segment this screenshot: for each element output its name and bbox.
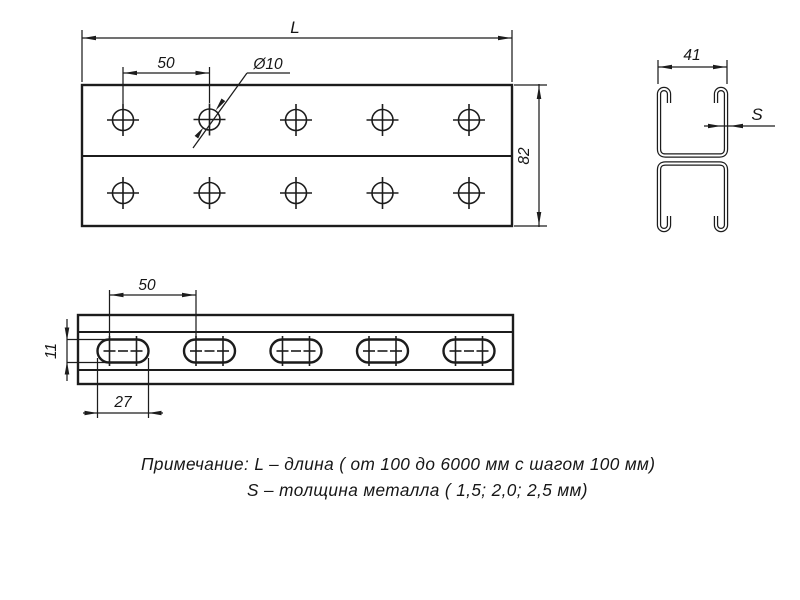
hole-marker [280, 177, 312, 209]
dim-hole-diameter: Ø10 [193, 56, 290, 148]
dim-thickness-label: S [751, 105, 763, 124]
lower-channel-section [659, 164, 726, 231]
hole-row-bottom [107, 177, 485, 209]
note-block: Примечание: L – длина ( от 100 до 6000 м… [141, 454, 655, 500]
upper-channel-section [659, 89, 726, 156]
dim-width-label: 41 [683, 47, 700, 64]
front-view: L 50 Ø10 82 [82, 18, 547, 227]
technical-drawing-sheet: L 50 Ø10 82 [0, 0, 800, 600]
slot-row [98, 336, 495, 366]
drawing-canvas: L 50 Ø10 82 [0, 0, 800, 600]
dim-height: 82 [514, 84, 547, 227]
dim-slot-spacing: 50 [110, 277, 197, 340]
dim-height-label: 82 [516, 147, 533, 165]
note-line-2: S – толщина металла ( 1,5; 2,0; 2,5 мм) [247, 480, 588, 500]
hole-row-top [107, 104, 485, 137]
dim-hole-spacing: 50 [123, 55, 210, 104]
dim-slot-length-label: 27 [113, 394, 133, 411]
slot-marker [444, 336, 495, 366]
dim-slot-spacing-label: 50 [138, 277, 156, 294]
hole-marker [367, 104, 399, 136]
hole-marker [194, 104, 226, 136]
side-view: 50 11 27 [43, 277, 513, 418]
dim-width: 41 [658, 47, 727, 84]
dim-hole-diameter-label: Ø10 [252, 56, 283, 73]
profile-view: 41 S [658, 47, 775, 230]
hole-marker [194, 177, 226, 209]
note-line-1: Примечание: L – длина ( от 100 до 6000 м… [141, 454, 655, 474]
slot-marker [98, 336, 149, 366]
channel-outline [78, 315, 513, 384]
slot-marker [357, 336, 408, 366]
hole-marker [107, 177, 139, 209]
slot-marker [184, 336, 235, 366]
hole-marker [367, 177, 399, 209]
dim-length-label: L [290, 18, 299, 37]
hole-marker [453, 104, 485, 136]
dim-slot-height-label: 11 [43, 343, 60, 359]
slot-marker [271, 336, 322, 366]
dim-hole-spacing-label: 50 [157, 55, 175, 72]
hole-marker [453, 177, 485, 209]
hole-marker [107, 104, 139, 136]
dim-thickness: S [704, 105, 775, 128]
dim-slot-length: 27 [83, 358, 163, 418]
hole-marker [280, 104, 312, 136]
